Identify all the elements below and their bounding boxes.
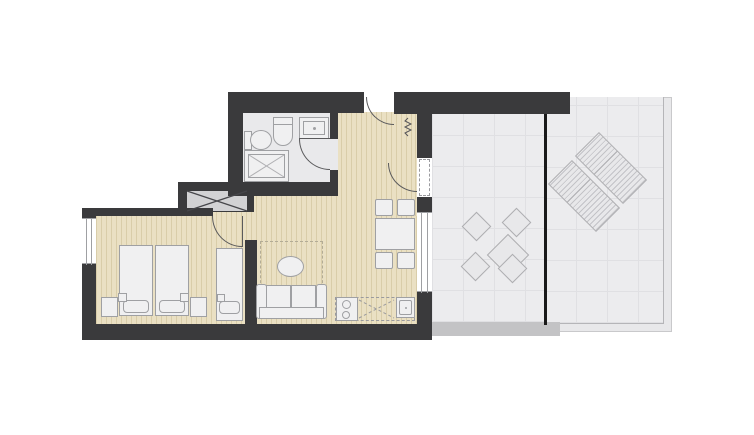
blanket-fold-corner	[118, 293, 127, 302]
sofa-seat-cushion	[291, 285, 316, 308]
window-glazing-line	[427, 213, 428, 293]
window-glazing-line	[421, 213, 422, 293]
wall-bathroom-right-lower	[330, 170, 338, 196]
sink-drain	[405, 307, 407, 309]
terrace-divider	[544, 114, 547, 325]
wall-bathroom-right-upper	[330, 112, 338, 139]
dining-table	[375, 218, 415, 250]
coffee-table	[277, 256, 304, 277]
wall-top-right	[394, 92, 570, 114]
wall-bottom	[82, 324, 432, 340]
wall-right-pier	[417, 197, 432, 212]
pillow	[219, 301, 240, 314]
toilet-bowl	[250, 130, 272, 150]
wall-shaft-right	[248, 186, 254, 212]
dining-chair	[375, 199, 393, 216]
washbasin-drain	[313, 127, 316, 130]
wall-right-upper	[417, 114, 432, 158]
wall-top-left	[228, 92, 364, 113]
dining-chair	[397, 199, 415, 216]
wall-bathroom-bottom	[228, 182, 338, 196]
sofa-seat-cushion	[266, 285, 291, 308]
sofa-backrest	[259, 307, 324, 319]
floor-plan-canvas	[0, 0, 754, 435]
shower-tray	[244, 150, 289, 182]
lounger-backrest-line	[594, 151, 617, 174]
terrace-door-panel	[419, 159, 430, 196]
bidet	[273, 117, 293, 146]
burner	[342, 300, 351, 309]
dining-chair	[397, 252, 415, 269]
bidet-rim-line	[274, 124, 292, 125]
living-window	[417, 212, 432, 292]
window-glazing-line	[86, 219, 87, 265]
nightstand-right	[190, 297, 207, 317]
wall-right-lower	[417, 292, 432, 324]
blanket-fold-corner	[180, 293, 189, 302]
dining-chair	[375, 252, 393, 269]
blanket-fold-corner	[217, 294, 225, 302]
window-glazing-line	[91, 219, 92, 265]
shower-inner	[248, 154, 285, 178]
wall-bedroom-top	[82, 208, 213, 216]
bedroom-window	[82, 218, 96, 264]
kitchen-sink	[396, 297, 415, 318]
lounger-backrest-line	[567, 179, 590, 202]
washbasin	[299, 117, 329, 139]
nightstand-left	[101, 297, 118, 317]
burner	[342, 311, 350, 319]
cooktop	[336, 297, 358, 321]
terrace-edge-strip	[432, 322, 560, 336]
wall-bathroom-left	[228, 92, 243, 190]
bedroom-door-leaf	[242, 216, 243, 247]
